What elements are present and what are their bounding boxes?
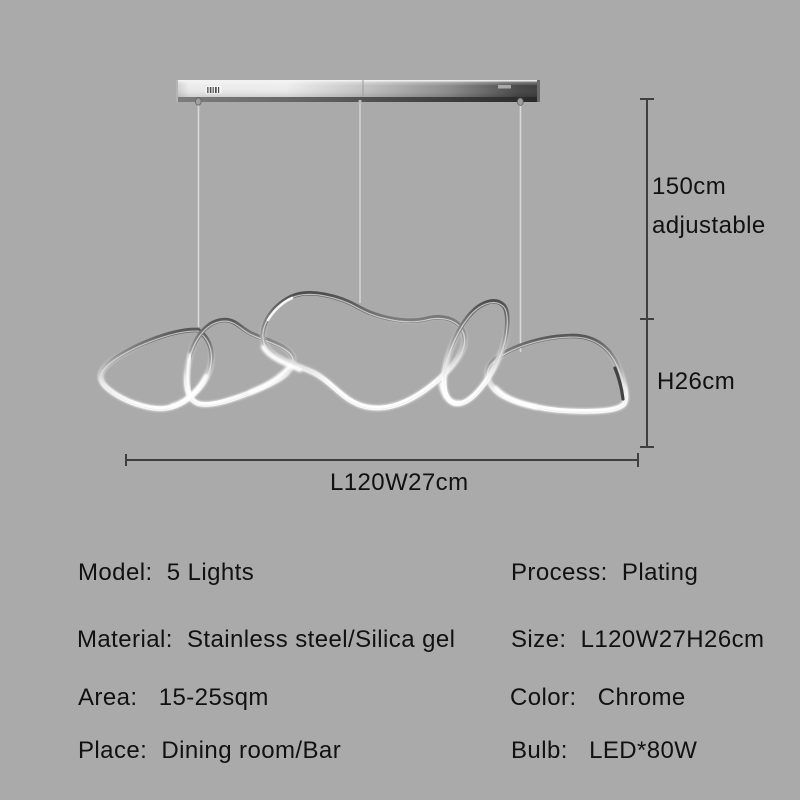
svg-text:Area: 15-25sqm: Area: 15-25sqm bbox=[78, 684, 269, 711]
svg-text:Size: L120W27H26cm: Size: L120W27H26cm bbox=[511, 626, 764, 653]
svg-text:150cm: 150cm bbox=[652, 173, 726, 200]
svg-text:Bulb: LED*80W: Bulb: LED*80W bbox=[511, 737, 697, 764]
svg-text:Material: Stainless steel/Sil: Material: Stainless steel/Silica gel bbox=[77, 626, 455, 653]
svg-text:Model: 5 Lights: Model: 5 Lights bbox=[78, 559, 254, 586]
svg-text:Color: Chrome: Color: Chrome bbox=[510, 684, 686, 711]
svg-text:H26cm: H26cm bbox=[657, 368, 735, 395]
svg-text:Process: Plating: Process: Plating bbox=[511, 559, 698, 586]
svg-text:L120W27cm: L120W27cm bbox=[330, 469, 469, 496]
svg-text:Place: Dining room/Bar: Place: Dining room/Bar bbox=[78, 737, 341, 764]
svg-text:adjustable: adjustable bbox=[652, 212, 766, 239]
